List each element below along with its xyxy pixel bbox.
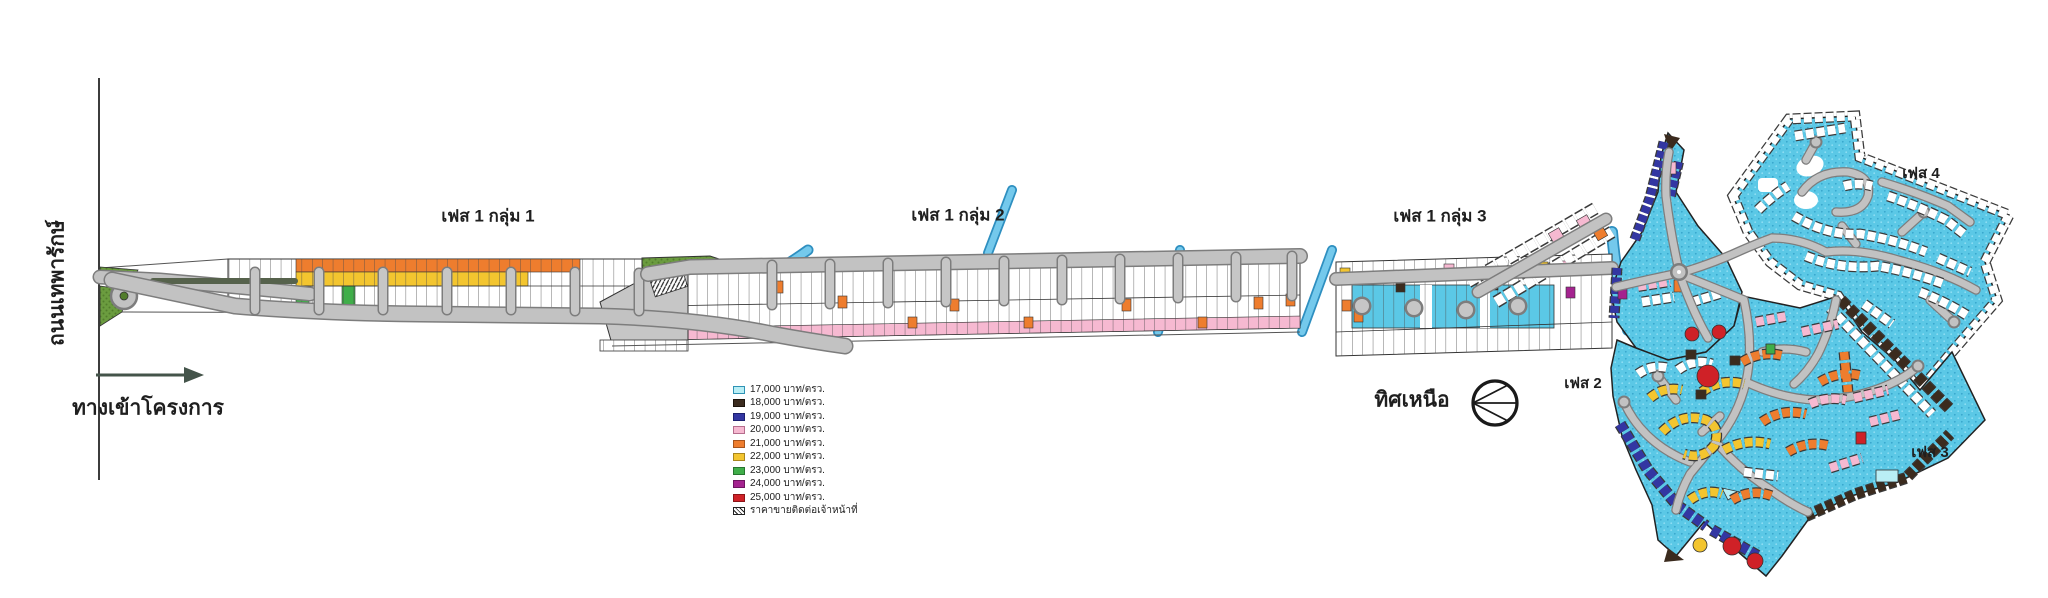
legend-swatch <box>733 413 745 421</box>
legend-item: ราคาขายติดต่อเจ้าหน้าที่ <box>733 506 858 518</box>
legend-item: 21,000 บาท/ตรว. <box>733 438 858 450</box>
legend-item-label: 22,000 บาท/ตรว. <box>750 452 825 462</box>
legend-item-label: 21,000 บาท/ตรว. <box>750 439 825 449</box>
legend-item-label: 24,000 บาท/ตรว. <box>750 479 825 489</box>
legend-swatch <box>733 426 745 434</box>
compass-icon <box>1465 374 1525 434</box>
legend-item: 24,000 บาท/ตรว. <box>733 479 858 491</box>
entrance-arrow-icon <box>92 364 212 386</box>
road-label: ถนนเทพารักษ์ <box>41 220 74 346</box>
north-label: ทิศเหนือ <box>1374 384 1449 417</box>
legend-item-label: 18,000 บาท/ตรว. <box>750 398 825 408</box>
phase-4-label: เฟส 4 <box>1902 161 1939 185</box>
legend-swatch <box>733 440 745 448</box>
phase-3-label: เฟส 3 <box>1911 440 1948 464</box>
legend-item-label: 23,000 บาท/ตรว. <box>750 466 825 476</box>
legend-swatch <box>733 467 745 475</box>
legend-swatch <box>733 494 745 502</box>
phase-1-group-1-label: เฟส 1 กลุ่ม 1 <box>441 203 534 230</box>
contact-price-hatch-icon <box>733 507 745 515</box>
legend-item-label: 25,000 บาท/ตรว. <box>750 493 825 503</box>
entrance-label: ทางเข้าโครงการ <box>72 392 224 425</box>
legend-swatch <box>733 480 745 488</box>
legend-item: 17,000 บาท/ตรว. <box>733 384 858 396</box>
legend-item-label: 20,000 บาท/ตรว. <box>750 425 825 435</box>
legend-item-label: 17,000 บาท/ตรว. <box>750 385 825 395</box>
phase-1-group-2-label: เฟส 1 กลุ่ม 2 <box>911 202 1004 229</box>
legend-item: 23,000 บาท/ตรว. <box>733 465 858 477</box>
legend-item: 19,000 บาท/ตรว. <box>733 411 858 423</box>
legend-swatch <box>733 386 745 394</box>
phase-1-group-3-label: เฟส 1 กลุ่ม 3 <box>1393 203 1486 230</box>
legend-swatch <box>733 399 745 407</box>
legend-item: 18,000 บาท/ตรว. <box>733 398 858 410</box>
site-plan-svg <box>0 0 2048 598</box>
legend-item: 25,000 บาท/ตรว. <box>733 492 858 504</box>
legend-item-label: ราคาขายติดต่อเจ้าหน้าที่ <box>750 506 858 516</box>
legend-swatch <box>733 453 745 461</box>
site-plan: ถนนเทพารักษ์ เฟส 1 กลุ่ม 1 เฟส 1 กลุ่ม 2… <box>0 0 2048 598</box>
legend-item-label: 19,000 บาท/ตรว. <box>750 412 825 422</box>
price-legend: 17,000 บาท/ตรว. 18,000 บาท/ตรว. 19,000 บ… <box>733 384 858 517</box>
phase-2-label: เฟส 2 <box>1564 371 1601 395</box>
legend-item: 22,000 บาท/ตรว. <box>733 452 858 464</box>
legend-item: 20,000 บาท/ตรว. <box>733 425 858 437</box>
